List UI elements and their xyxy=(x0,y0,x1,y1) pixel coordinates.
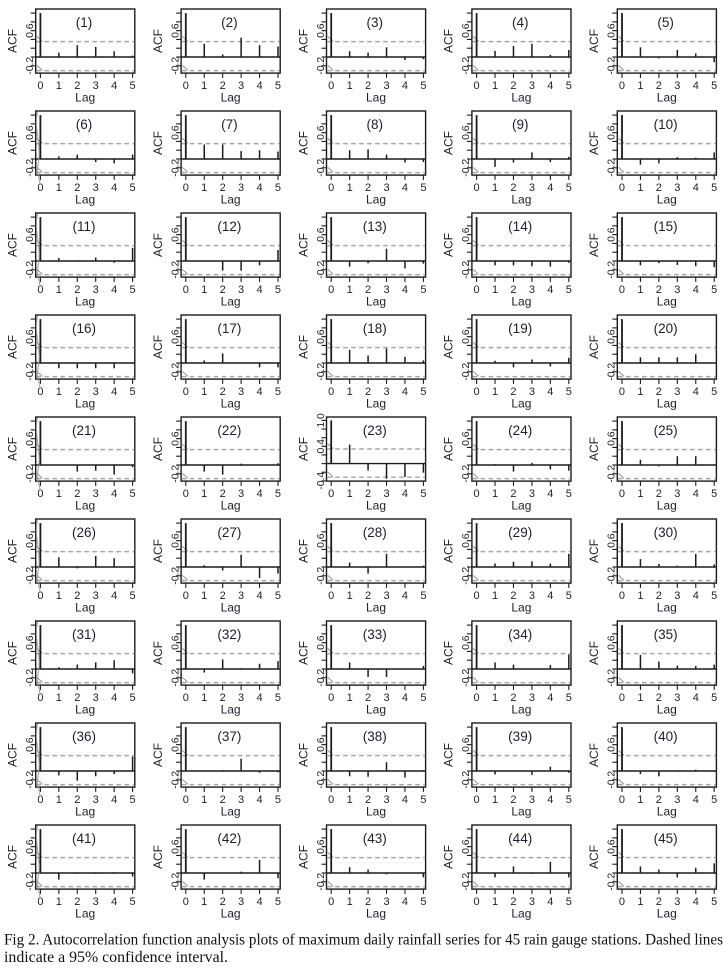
svg-text:ACF: ACF xyxy=(6,641,20,665)
svg-text:Lag: Lag xyxy=(221,600,241,614)
svg-text:4: 4 xyxy=(547,692,553,704)
svg-text:Lag: Lag xyxy=(511,396,531,410)
svg-text:-0.2: -0.2 xyxy=(170,363,181,381)
svg-text:ACF: ACF xyxy=(151,233,165,257)
svg-text:1: 1 xyxy=(347,182,353,194)
svg-text:4: 4 xyxy=(256,182,262,194)
svg-text:4: 4 xyxy=(693,590,699,602)
svg-text:1: 1 xyxy=(492,896,498,908)
svg-text:1: 1 xyxy=(347,692,353,704)
svg-text:ACF: ACF xyxy=(587,437,601,461)
svg-text:5: 5 xyxy=(275,794,281,806)
svg-text:-0.2: -0.2 xyxy=(607,771,618,789)
svg-text:(14): (14) xyxy=(508,219,532,234)
svg-text:5: 5 xyxy=(420,284,426,296)
svg-text:-0.2: -0.2 xyxy=(170,159,181,177)
svg-text:ACF: ACF xyxy=(296,29,310,53)
svg-text:1: 1 xyxy=(347,794,353,806)
svg-text:1: 1 xyxy=(492,182,498,194)
svg-text:-0.2: -0.2 xyxy=(25,363,36,381)
svg-text:4: 4 xyxy=(402,896,408,908)
svg-text:ACF: ACF xyxy=(151,29,165,53)
svg-text:-0.2: -0.2 xyxy=(170,873,181,891)
svg-text:5: 5 xyxy=(566,896,572,908)
svg-text:4: 4 xyxy=(693,692,699,704)
svg-text:0: 0 xyxy=(183,386,189,398)
svg-text:-0.2: -0.2 xyxy=(170,771,181,789)
svg-text:0: 0 xyxy=(474,794,480,806)
svg-text:ACF: ACF xyxy=(151,743,165,767)
svg-text:ACF: ACF xyxy=(296,233,310,257)
svg-text:ACF: ACF xyxy=(6,437,20,461)
svg-text:1: 1 xyxy=(201,386,207,398)
svg-text:Lag: Lag xyxy=(657,906,677,920)
svg-text:0.6: 0.6 xyxy=(316,839,327,854)
svg-text:ACF: ACF xyxy=(587,29,601,53)
svg-text:ACF: ACF xyxy=(296,335,310,359)
svg-text:4: 4 xyxy=(693,80,699,92)
svg-text:4: 4 xyxy=(256,488,262,500)
svg-text:-0.2: -0.2 xyxy=(25,57,36,75)
svg-text:ACF: ACF xyxy=(587,233,601,257)
svg-text:0.4: 0.4 xyxy=(316,439,327,454)
svg-text:Lag: Lag xyxy=(75,192,95,206)
svg-text:1: 1 xyxy=(347,488,353,500)
svg-text:0.6: 0.6 xyxy=(25,431,36,446)
svg-text:-0.2: -0.2 xyxy=(461,261,472,279)
svg-text:(9): (9) xyxy=(512,117,529,132)
svg-text:(5): (5) xyxy=(657,15,674,30)
svg-text:1: 1 xyxy=(201,80,207,92)
svg-text:0.6: 0.6 xyxy=(461,635,472,650)
svg-text:4: 4 xyxy=(693,896,699,908)
svg-text:-0.2: -0.2 xyxy=(316,873,327,891)
svg-text:ACF: ACF xyxy=(296,131,310,155)
svg-text:5: 5 xyxy=(275,182,281,194)
svg-text:Lag: Lag xyxy=(221,90,241,104)
svg-text:5: 5 xyxy=(420,80,426,92)
svg-text:(28): (28) xyxy=(363,525,387,540)
svg-text:1: 1 xyxy=(492,692,498,704)
svg-text:5: 5 xyxy=(566,80,572,92)
svg-text:Lag: Lag xyxy=(511,294,531,308)
svg-text:5: 5 xyxy=(566,794,572,806)
svg-text:-0.2: -0.2 xyxy=(25,771,36,789)
svg-text:5: 5 xyxy=(566,182,572,194)
svg-text:(39): (39) xyxy=(508,729,532,744)
svg-text:(44): (44) xyxy=(508,831,532,846)
svg-text:ACF: ACF xyxy=(442,845,456,869)
svg-text:5: 5 xyxy=(275,590,281,602)
svg-text:-0.2: -0.2 xyxy=(461,771,472,789)
svg-text:0.6: 0.6 xyxy=(607,329,618,344)
svg-text:4: 4 xyxy=(547,896,553,908)
svg-text:4: 4 xyxy=(111,590,117,602)
svg-text:4: 4 xyxy=(402,794,408,806)
svg-text:(37): (37) xyxy=(217,729,241,744)
svg-text:ACF: ACF xyxy=(151,437,165,461)
svg-text:Lag: Lag xyxy=(511,804,531,818)
svg-text:ACF: ACF xyxy=(6,131,20,155)
svg-text:Lag: Lag xyxy=(75,906,95,920)
svg-text:(22): (22) xyxy=(217,423,241,438)
svg-text:0.6: 0.6 xyxy=(607,635,618,650)
svg-text:5: 5 xyxy=(711,284,717,296)
svg-text:5: 5 xyxy=(566,488,572,500)
svg-text:1: 1 xyxy=(637,488,643,500)
svg-text:0.6: 0.6 xyxy=(170,329,181,344)
svg-text:4: 4 xyxy=(256,80,262,92)
svg-text:0.6: 0.6 xyxy=(461,431,472,446)
svg-text:0: 0 xyxy=(183,692,189,704)
svg-text:(3): (3) xyxy=(367,15,384,30)
svg-text:0.6: 0.6 xyxy=(170,533,181,548)
svg-text:0.6: 0.6 xyxy=(461,23,472,38)
svg-text:0.6: 0.6 xyxy=(25,23,36,38)
svg-text:0.6: 0.6 xyxy=(461,125,472,140)
svg-text:Lag: Lag xyxy=(221,192,241,206)
svg-text:-0.2: -0.2 xyxy=(461,159,472,177)
svg-text:5: 5 xyxy=(420,590,426,602)
svg-text:5: 5 xyxy=(130,692,136,704)
svg-text:4: 4 xyxy=(547,488,553,500)
svg-text:4: 4 xyxy=(693,182,699,194)
svg-text:0: 0 xyxy=(328,80,334,92)
svg-text:0: 0 xyxy=(619,284,625,296)
svg-text:0: 0 xyxy=(183,590,189,602)
svg-text:4: 4 xyxy=(256,692,262,704)
svg-text:5: 5 xyxy=(275,284,281,296)
svg-text:Lag: Lag xyxy=(366,906,386,920)
svg-text:4: 4 xyxy=(111,692,117,704)
svg-text:-0.2: -0.2 xyxy=(170,57,181,75)
svg-text:ACF: ACF xyxy=(151,335,165,359)
svg-text:1: 1 xyxy=(637,182,643,194)
svg-text:(40): (40) xyxy=(654,729,678,744)
svg-text:1: 1 xyxy=(201,896,207,908)
svg-text:Lag: Lag xyxy=(657,396,677,410)
svg-text:4: 4 xyxy=(256,896,262,908)
svg-text:4: 4 xyxy=(111,80,117,92)
svg-text:0.6: 0.6 xyxy=(25,635,36,650)
svg-text:1: 1 xyxy=(56,386,62,398)
svg-text:0: 0 xyxy=(183,182,189,194)
svg-text:0.6: 0.6 xyxy=(607,737,618,752)
svg-text:0.6: 0.6 xyxy=(316,23,327,38)
svg-text:0.6: 0.6 xyxy=(25,533,36,548)
svg-text:ACF: ACF xyxy=(587,539,601,563)
svg-text:Lag: Lag xyxy=(366,804,386,818)
svg-text:1: 1 xyxy=(492,386,498,398)
svg-text:Lag: Lag xyxy=(75,702,95,716)
svg-text:-0.2: -0.2 xyxy=(170,567,181,585)
svg-text:1: 1 xyxy=(56,794,62,806)
svg-text:0: 0 xyxy=(474,284,480,296)
svg-text:(15): (15) xyxy=(654,219,678,234)
svg-text:-0.2: -0.2 xyxy=(170,669,181,687)
svg-text:Lag: Lag xyxy=(221,804,241,818)
svg-text:ACF: ACF xyxy=(587,335,601,359)
svg-text:4: 4 xyxy=(402,692,408,704)
svg-text:4: 4 xyxy=(402,182,408,194)
svg-text:4: 4 xyxy=(693,488,699,500)
svg-text:1: 1 xyxy=(201,182,207,194)
svg-text:(31): (31) xyxy=(72,627,96,642)
svg-text:0.6: 0.6 xyxy=(316,737,327,752)
svg-text:0: 0 xyxy=(328,896,334,908)
svg-text:1: 1 xyxy=(637,590,643,602)
svg-text:0.6: 0.6 xyxy=(461,329,472,344)
svg-text:0.6: 0.6 xyxy=(25,839,36,854)
svg-text:-0.2: -0.2 xyxy=(607,261,618,279)
svg-text:4: 4 xyxy=(256,794,262,806)
svg-text:(32): (32) xyxy=(217,627,241,642)
svg-text:(7): (7) xyxy=(221,117,238,132)
svg-text:0: 0 xyxy=(619,488,625,500)
svg-text:0: 0 xyxy=(328,182,334,194)
svg-text:0: 0 xyxy=(183,284,189,296)
svg-text:-0.2: -0.2 xyxy=(607,159,618,177)
svg-text:5: 5 xyxy=(130,488,136,500)
svg-text:0.6: 0.6 xyxy=(316,635,327,650)
svg-text:0.6: 0.6 xyxy=(25,125,36,140)
svg-text:ACF: ACF xyxy=(296,743,310,767)
svg-text:0.6: 0.6 xyxy=(461,839,472,854)
svg-text:Lag: Lag xyxy=(511,498,531,512)
svg-text:Lag: Lag xyxy=(366,90,386,104)
svg-text:-0.2: -0.2 xyxy=(316,57,327,75)
svg-text:-0.2: -0.2 xyxy=(25,261,36,279)
svg-text:5: 5 xyxy=(711,692,717,704)
svg-text:Lag: Lag xyxy=(366,498,386,512)
svg-text:indicate a 95% confidence inte: indicate a 95% confidence interval. xyxy=(4,949,228,966)
svg-text:4: 4 xyxy=(693,794,699,806)
svg-text:(36): (36) xyxy=(72,729,96,744)
svg-text:1: 1 xyxy=(347,896,353,908)
svg-text:0.6: 0.6 xyxy=(25,329,36,344)
svg-text:Lag: Lag xyxy=(657,804,677,818)
svg-text:0: 0 xyxy=(619,896,625,908)
svg-text:(27): (27) xyxy=(217,525,241,540)
svg-text:0.6: 0.6 xyxy=(607,23,618,38)
svg-text:5: 5 xyxy=(275,386,281,398)
svg-text:5: 5 xyxy=(566,284,572,296)
svg-text:0: 0 xyxy=(328,590,334,602)
svg-text:ACF: ACF xyxy=(587,743,601,767)
svg-text:5: 5 xyxy=(711,896,717,908)
svg-text:5: 5 xyxy=(711,182,717,194)
svg-text:4: 4 xyxy=(693,386,699,398)
svg-text:0.6: 0.6 xyxy=(25,227,36,242)
svg-text:Fig 2. Autocorrelation functio: Fig 2. Autocorrelation function analysis… xyxy=(4,932,723,949)
svg-text:5: 5 xyxy=(130,80,136,92)
svg-text:ACF: ACF xyxy=(296,539,310,563)
svg-text:1: 1 xyxy=(492,284,498,296)
svg-text:1: 1 xyxy=(201,590,207,602)
svg-text:0: 0 xyxy=(328,284,334,296)
svg-text:1: 1 xyxy=(637,794,643,806)
svg-text:-0.2: -0.2 xyxy=(25,873,36,891)
svg-text:ACF: ACF xyxy=(151,641,165,665)
svg-text:-0.2: -0.2 xyxy=(607,57,618,75)
svg-text:Lag: Lag xyxy=(221,294,241,308)
svg-text:ACF: ACF xyxy=(442,539,456,563)
svg-text:5: 5 xyxy=(275,488,281,500)
svg-text:ACF: ACF xyxy=(442,335,456,359)
svg-text:ACF: ACF xyxy=(6,539,20,563)
svg-text:-0.2: -0.2 xyxy=(316,771,327,789)
svg-text:0: 0 xyxy=(619,386,625,398)
svg-text:(41): (41) xyxy=(72,831,96,846)
svg-text:1.0: 1.0 xyxy=(316,413,327,428)
svg-text:5: 5 xyxy=(566,386,572,398)
svg-text:5: 5 xyxy=(566,692,572,704)
svg-text:ACF: ACF xyxy=(6,233,20,257)
svg-text:Lag: Lag xyxy=(366,294,386,308)
svg-text:1: 1 xyxy=(56,284,62,296)
svg-text:Lag: Lag xyxy=(657,294,677,308)
svg-text:-0.2: -0.2 xyxy=(170,261,181,279)
svg-text:5: 5 xyxy=(711,386,717,398)
svg-text:ACF: ACF xyxy=(296,641,310,665)
svg-text:1: 1 xyxy=(347,80,353,92)
svg-text:Lag: Lag xyxy=(366,600,386,614)
svg-text:4: 4 xyxy=(111,182,117,194)
svg-text:ACF: ACF xyxy=(296,437,310,461)
svg-text:(11): (11) xyxy=(72,219,95,234)
svg-text:(43): (43) xyxy=(363,831,387,846)
svg-text:1: 1 xyxy=(637,284,643,296)
svg-text:1: 1 xyxy=(347,284,353,296)
svg-text:5: 5 xyxy=(566,590,572,602)
svg-text:Lag: Lag xyxy=(221,906,241,920)
svg-text:0.6: 0.6 xyxy=(316,227,327,242)
svg-text:-0.2: -0.2 xyxy=(607,567,618,585)
svg-text:-0.2: -0.2 xyxy=(316,567,327,585)
svg-text:Lag: Lag xyxy=(366,396,386,410)
svg-text:0: 0 xyxy=(37,80,43,92)
svg-text:ACF: ACF xyxy=(442,131,456,155)
svg-text:1: 1 xyxy=(492,488,498,500)
svg-text:Lag: Lag xyxy=(75,294,95,308)
svg-text:1: 1 xyxy=(56,80,62,92)
svg-text:(38): (38) xyxy=(363,729,387,744)
svg-text:(35): (35) xyxy=(654,627,678,642)
svg-text:0.6: 0.6 xyxy=(316,329,327,344)
svg-text:ACF: ACF xyxy=(151,131,165,155)
svg-text:Lag: Lag xyxy=(657,90,677,104)
svg-text:(34): (34) xyxy=(508,627,532,642)
svg-text:Lag: Lag xyxy=(366,192,386,206)
svg-text:1: 1 xyxy=(56,896,62,908)
svg-text:0.6: 0.6 xyxy=(461,227,472,242)
svg-text:0.6: 0.6 xyxy=(316,533,327,548)
svg-text:5: 5 xyxy=(420,488,426,500)
svg-text:-0.2: -0.2 xyxy=(461,363,472,381)
svg-text:ACF: ACF xyxy=(442,437,456,461)
svg-text:(42): (42) xyxy=(217,831,241,846)
svg-text:-0.2: -0.2 xyxy=(607,873,618,891)
svg-text:1: 1 xyxy=(201,794,207,806)
svg-text:0: 0 xyxy=(328,488,334,500)
svg-text:Lag: Lag xyxy=(75,90,95,104)
svg-text:5: 5 xyxy=(420,692,426,704)
svg-text:(10): (10) xyxy=(654,117,678,132)
svg-text:-0.2: -0.2 xyxy=(461,57,472,75)
svg-text:(18): (18) xyxy=(363,321,387,336)
svg-text:1: 1 xyxy=(637,386,643,398)
svg-text:(13): (13) xyxy=(363,219,387,234)
svg-text:(20): (20) xyxy=(654,321,678,336)
svg-text:ACF: ACF xyxy=(6,743,20,767)
svg-text:(45): (45) xyxy=(654,831,678,846)
svg-text:Lag: Lag xyxy=(221,396,241,410)
svg-text:0.6: 0.6 xyxy=(170,635,181,650)
svg-text:4: 4 xyxy=(256,284,262,296)
svg-text:(29): (29) xyxy=(508,525,532,540)
svg-text:ACF: ACF xyxy=(6,335,20,359)
svg-text:-0.2: -0.2 xyxy=(25,567,36,585)
svg-text:0: 0 xyxy=(183,896,189,908)
svg-text:(24): (24) xyxy=(508,423,532,438)
svg-text:0.6: 0.6 xyxy=(607,227,618,242)
svg-text:-0.2: -0.2 xyxy=(25,159,36,177)
svg-text:4: 4 xyxy=(547,590,553,602)
svg-text:0: 0 xyxy=(183,80,189,92)
svg-text:4: 4 xyxy=(547,80,553,92)
svg-text:0: 0 xyxy=(328,794,334,806)
svg-text:Lag: Lag xyxy=(221,702,241,716)
svg-text:(17): (17) xyxy=(217,321,241,336)
svg-text:-0.2: -0.2 xyxy=(607,669,618,687)
svg-text:-0.2: -0.2 xyxy=(25,465,36,483)
svg-text:Lag: Lag xyxy=(75,600,95,614)
svg-text:0: 0 xyxy=(619,692,625,704)
svg-text:5: 5 xyxy=(275,80,281,92)
svg-text:0: 0 xyxy=(619,80,625,92)
svg-text:ACF: ACF xyxy=(587,131,601,155)
svg-text:4: 4 xyxy=(402,590,408,602)
svg-text:ACF: ACF xyxy=(442,29,456,53)
svg-text:4: 4 xyxy=(693,284,699,296)
svg-text:4: 4 xyxy=(402,284,408,296)
svg-text:ACF: ACF xyxy=(151,845,165,869)
svg-text:4: 4 xyxy=(402,80,408,92)
svg-text:0.6: 0.6 xyxy=(607,125,618,140)
svg-text:-0.2: -0.2 xyxy=(461,873,472,891)
svg-text:1: 1 xyxy=(201,284,207,296)
svg-text:5: 5 xyxy=(130,386,136,398)
svg-text:4: 4 xyxy=(111,386,117,398)
svg-text:-0.2: -0.2 xyxy=(316,669,327,687)
svg-text:1: 1 xyxy=(492,80,498,92)
svg-text:1: 1 xyxy=(347,386,353,398)
svg-text:0: 0 xyxy=(619,590,625,602)
svg-text:ACF: ACF xyxy=(6,845,20,869)
svg-text:Lag: Lag xyxy=(511,702,531,716)
svg-text:5: 5 xyxy=(420,896,426,908)
svg-text:1: 1 xyxy=(492,794,498,806)
svg-text:0.6: 0.6 xyxy=(170,839,181,854)
svg-text:Lag: Lag xyxy=(75,498,95,512)
svg-text:Lag: Lag xyxy=(657,498,677,512)
svg-text:5: 5 xyxy=(130,284,136,296)
svg-text:5: 5 xyxy=(711,794,717,806)
svg-text:4: 4 xyxy=(547,182,553,194)
svg-text:Lag: Lag xyxy=(75,804,95,818)
svg-text:0.6: 0.6 xyxy=(170,227,181,242)
svg-text:5: 5 xyxy=(711,590,717,602)
